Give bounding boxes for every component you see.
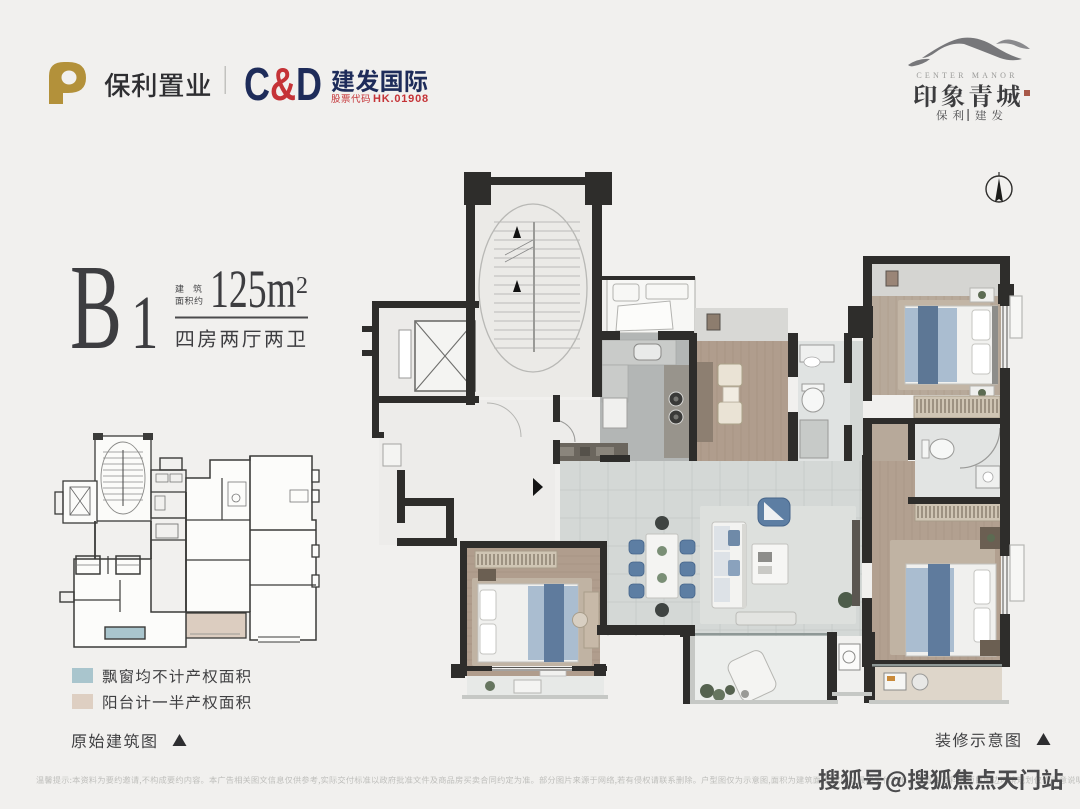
- svg-text:B: B: [70, 258, 122, 358]
- svg-text:2: 2: [296, 273, 308, 299]
- svg-text:HK.01908: HK.01908: [373, 93, 429, 105]
- svg-text:125m: 125m: [210, 259, 296, 319]
- svg-text:CENTER MANOR: CENTER MANOR: [916, 71, 1017, 80]
- svg-text:1: 1: [131, 281, 158, 358]
- svg-text:C&D: C&D: [244, 58, 322, 110]
